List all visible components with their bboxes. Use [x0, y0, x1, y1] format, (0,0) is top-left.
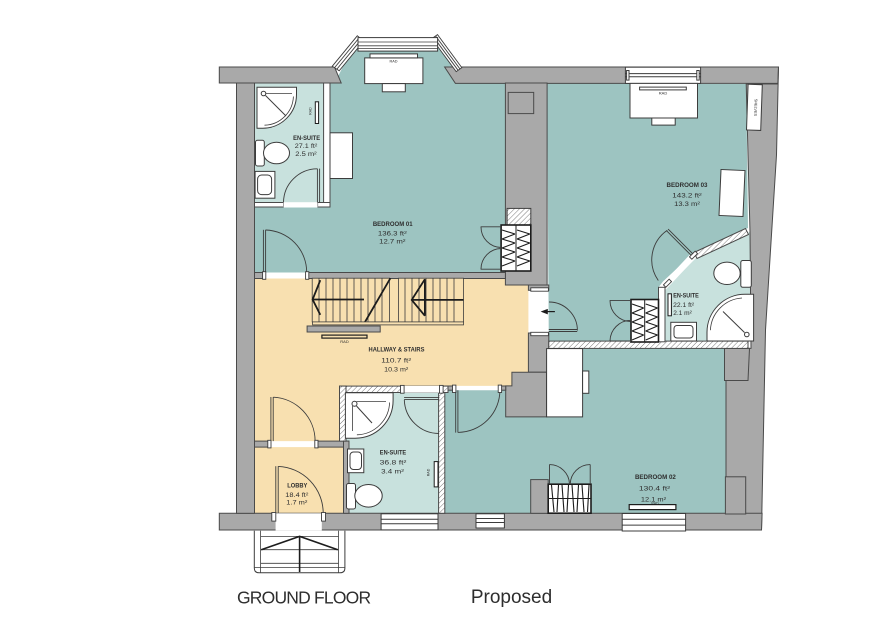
svg-text:13.3 m²: 13.3 m² [674, 201, 701, 208]
svg-text:RAD: RAD [659, 91, 668, 96]
svg-text:10.3 m²: 10.3 m² [384, 367, 409, 374]
svg-text:RAD: RAD [340, 339, 349, 344]
svg-text:BEDROOM 01: BEDROOM 01 [373, 221, 413, 228]
svg-text:EN-SUITE: EN-SUITE [293, 135, 320, 142]
svg-text:22.1 ft²: 22.1 ft² [673, 302, 695, 309]
svg-text:110.7 ft²: 110.7 ft² [381, 357, 412, 364]
svg-text:2.5 m²: 2.5 m² [295, 151, 317, 158]
svg-text:RAD: RAD [389, 59, 397, 63]
svg-text:HALLWAY & STAIRS: HALLWAY & STAIRS [369, 347, 426, 354]
svg-text:1.7 m²: 1.7 m² [286, 499, 308, 506]
svg-text:Proposed: Proposed [471, 587, 552, 608]
svg-text:EN-SUITE: EN-SUITE [380, 450, 407, 457]
svg-text:36.8 ft²: 36.8 ft² [380, 459, 408, 466]
svg-text:RAD: RAD [309, 107, 313, 115]
svg-text:130.4 ft²: 130.4 ft² [639, 486, 671, 493]
svg-text:27.1 ft²: 27.1 ft² [295, 143, 318, 150]
svg-text:12.7 m²: 12.7 m² [379, 239, 406, 246]
svg-text:2.1 m²: 2.1 m² [673, 310, 692, 317]
svg-text:LOBBY: LOBBY [287, 482, 308, 489]
svg-text:BEDROOM 03: BEDROOM 03 [667, 182, 708, 189]
svg-text:GROUND FLOOR: GROUND FLOOR [237, 588, 370, 608]
svg-text:12.1 m²: 12.1 m² [641, 496, 667, 503]
svg-text:EN-SUITE: EN-SUITE [673, 293, 699, 300]
svg-text:136.3 ft²: 136.3 ft² [378, 230, 408, 237]
svg-text:3.4 m²: 3.4 m² [381, 468, 405, 475]
svg-text:18.4 ft²: 18.4 ft² [285, 492, 309, 499]
svg-text:143.2 ft²: 143.2 ft² [672, 192, 702, 199]
svg-text:RAD: RAD [427, 468, 431, 476]
svg-text:SHELVES: SHELVES [753, 99, 758, 117]
svg-text:BEDROOM 02: BEDROOM 02 [635, 474, 676, 481]
